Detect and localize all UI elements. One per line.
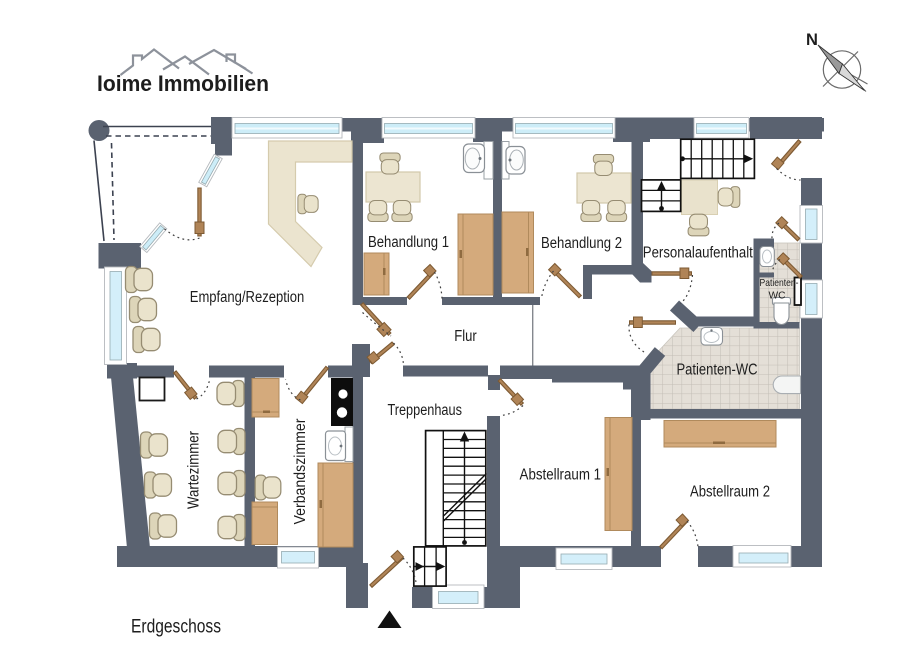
svg-text:N: N [806,31,818,49]
svg-text:Ioime Immobilien: Ioime Immobilien [97,71,269,96]
svg-text:Personalaufenthalt: Personalaufenthalt [643,245,754,262]
svg-text:Treppenhaus: Treppenhaus [387,402,462,419]
svg-text:Verbandszimmer: Verbandszimmer [292,419,309,525]
svg-text:Abstellraum 1: Abstellraum 1 [520,467,602,484]
svg-text:Empfang/Rezeption: Empfang/Rezeption [190,289,305,306]
svg-text:Behandlung 1: Behandlung 1 [368,234,449,251]
svg-text:Erdgeschoss: Erdgeschoss [131,617,221,638]
svg-text:Behandlung 2: Behandlung 2 [541,235,622,252]
svg-text:Wartezimmer: Wartezimmer [186,431,203,509]
svg-text:Patienten-: Patienten- [760,277,799,289]
svg-text:Patienten-WC: Patienten-WC [677,362,758,379]
svg-text:Flur: Flur [454,328,477,345]
svg-text:Abstellraum 2: Abstellraum 2 [690,484,770,501]
svg-text:WC: WC [769,290,786,302]
